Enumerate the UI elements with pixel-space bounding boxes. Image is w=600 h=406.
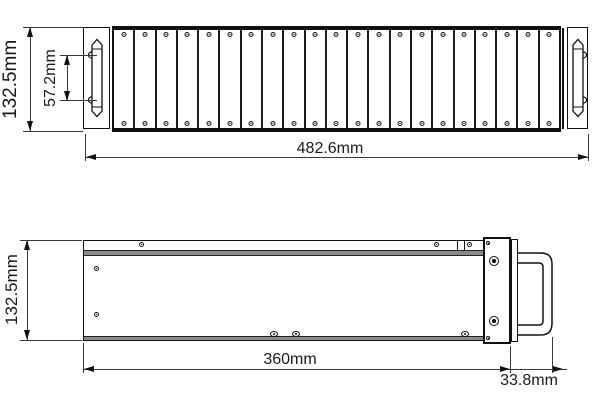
arrow-down-icon (64, 91, 70, 101)
arrow-left-icon (84, 366, 94, 372)
lid-seam-line (84, 250, 510, 256)
front-bezel-side (483, 237, 511, 344)
screw-icon (291, 121, 296, 126)
screw-icon (94, 266, 99, 271)
screw-icon (313, 121, 318, 126)
screw-icon (377, 121, 382, 126)
screw-icon (355, 121, 360, 126)
screw-icon (270, 121, 275, 126)
dimension-line (30, 28, 31, 131)
screw-icon (228, 121, 233, 126)
arrow-down-icon (24, 330, 30, 340)
screw-icon (313, 32, 318, 37)
screw-icon (525, 32, 530, 37)
screw-icon (334, 121, 339, 126)
screw-icon (434, 242, 439, 247)
screw-icon (355, 32, 360, 37)
arrow-left-icon (86, 154, 96, 160)
slat-panel (518, 30, 539, 128)
arrow-up-icon (24, 240, 30, 250)
screw-icon (142, 32, 147, 37)
screw-icon (185, 121, 190, 126)
screw-icon (249, 121, 254, 126)
screw-icon (164, 121, 169, 126)
front-width-label: 482.6mm (250, 140, 410, 158)
bezel-screw-icon (489, 256, 499, 266)
screw-icon (206, 121, 211, 126)
slat-panel (199, 30, 220, 128)
front-view (83, 26, 588, 132)
extension-line (20, 340, 82, 341)
dimension-line (83, 369, 511, 370)
screw-icon (525, 121, 530, 126)
rivet-icon (292, 331, 300, 337)
screw-icon (467, 242, 472, 247)
rivet-icon (270, 331, 278, 337)
slat-panel (114, 30, 135, 128)
rack-handle-right-icon (569, 38, 587, 118)
rivet-icon (461, 331, 469, 337)
screw-icon (228, 32, 233, 37)
screw-icon (440, 121, 445, 126)
slat-area (112, 26, 561, 132)
front-height-label: 132.5mm (0, 26, 22, 132)
screw-icon (377, 32, 382, 37)
screw-icon (94, 312, 99, 317)
screw-icon (142, 121, 147, 126)
slat-panel (369, 30, 390, 128)
slat-panel (157, 30, 178, 128)
slat-panel (135, 30, 156, 128)
side-view (83, 237, 552, 344)
slat-panel (306, 30, 327, 128)
arrow-right-icon (500, 366, 510, 372)
side-length-label: 360mm (230, 351, 350, 369)
slat-panel (178, 30, 199, 128)
screw-icon (398, 32, 403, 37)
screw-icon (139, 242, 144, 247)
arrow-right-icon (578, 154, 588, 160)
screw-icon (462, 121, 467, 126)
screw-icon (504, 32, 509, 37)
screw-icon (270, 32, 275, 37)
lid-notch-line (464, 241, 465, 251)
screw-icon (486, 241, 490, 245)
slat-panel (476, 30, 497, 128)
screw-icon (486, 336, 490, 340)
bezel-cap (511, 239, 518, 342)
arrow-up-icon (27, 27, 33, 37)
side-body (83, 240, 511, 341)
arrow-up-icon (64, 55, 70, 65)
side-height-label: 132.5mm (2, 238, 22, 342)
side-handle-depth-label: 33.8mm (498, 372, 560, 390)
screw-icon (206, 32, 211, 37)
screw-icon (462, 32, 467, 37)
extension-line (23, 131, 83, 132)
screw-icon (440, 32, 445, 37)
slat-panel (412, 30, 433, 128)
arrow-down-icon (27, 121, 33, 131)
dimension-line (511, 369, 552, 370)
screw-icon (164, 32, 169, 37)
screw-icon (547, 121, 552, 126)
screw-icon (334, 32, 339, 37)
arrow-right-icon (553, 366, 563, 372)
screw-icon (249, 32, 254, 37)
engineering-drawing: 132.5mm 57.2mm 482.6mm (0, 0, 600, 406)
screw-icon (483, 121, 488, 126)
slat-panel (242, 30, 263, 128)
chassis-joint-line (562, 28, 564, 129)
rack-ear-left (83, 27, 110, 129)
screw-icon (419, 32, 424, 37)
screw-icon (185, 32, 190, 37)
slat-panel (540, 30, 559, 128)
screw-icon (504, 121, 509, 126)
slat-panel (220, 30, 241, 128)
slat-panel (497, 30, 518, 128)
dimension-line (27, 241, 28, 340)
slat-panel (455, 30, 476, 128)
slat-panel (391, 30, 412, 128)
lid-notch-line (457, 241, 458, 251)
front-handle-span-label: 57.2mm (42, 49, 60, 107)
screw-icon (398, 121, 403, 126)
slat-panel (348, 30, 369, 128)
screw-icon (291, 32, 296, 37)
slat-panel (433, 30, 454, 128)
rack-ear-right (567, 27, 588, 129)
screw-icon (121, 121, 126, 126)
screw-icon (121, 32, 126, 37)
screw-icon (483, 32, 488, 37)
screw-icon (547, 32, 552, 37)
slat-panel (284, 30, 305, 128)
slat-panel (263, 30, 284, 128)
slat-panel (327, 30, 348, 128)
rack-handle-left-icon (88, 38, 106, 118)
screw-icon (419, 121, 424, 126)
pull-handle-icon (517, 252, 553, 336)
bezel-screw-icon (489, 316, 499, 326)
